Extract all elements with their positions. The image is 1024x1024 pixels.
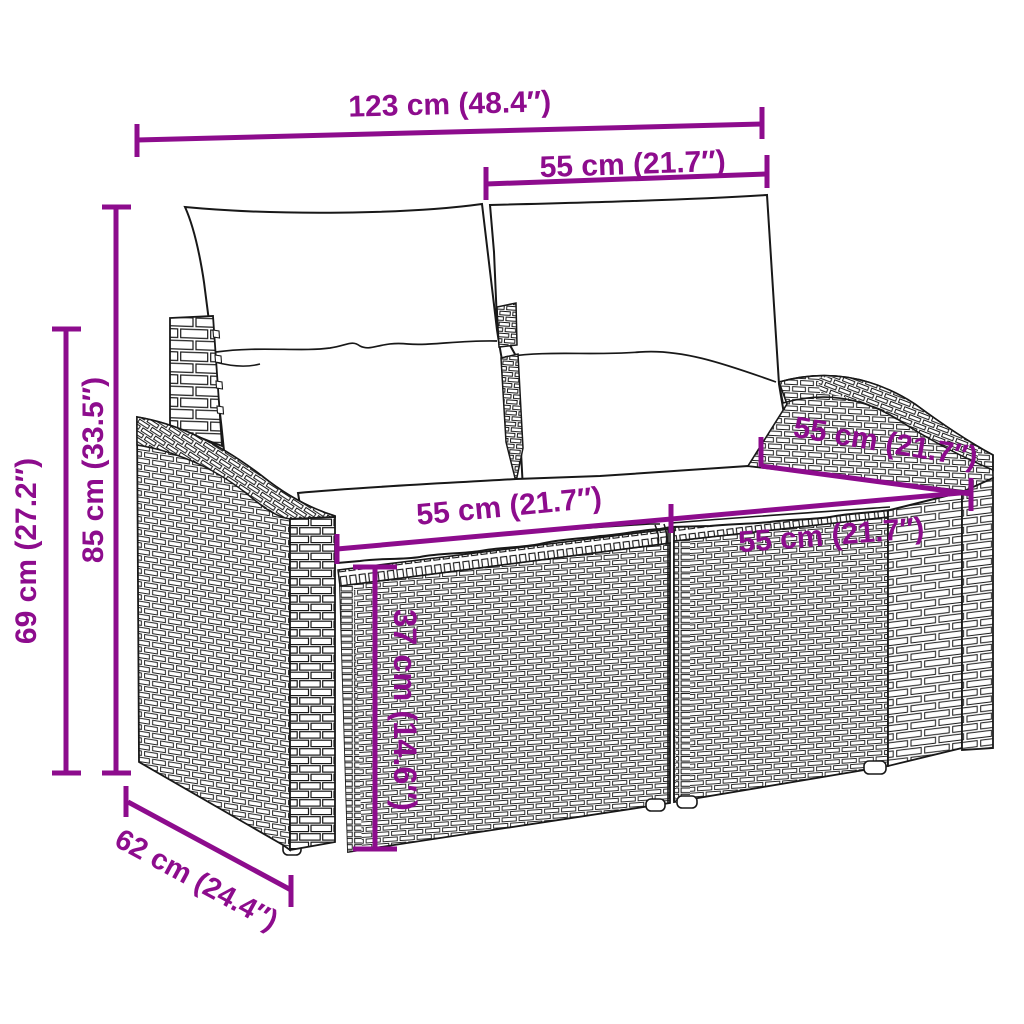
- svg-text:69 cm (27.2″): 69 cm (27.2″): [10, 458, 43, 644]
- svg-text:55 cm (21.7″): 55 cm (21.7″): [539, 145, 726, 184]
- svg-text:123 cm (48.4″): 123 cm (48.4″): [348, 85, 552, 123]
- svg-text:37 cm (14.6″): 37 cm (14.6″): [387, 609, 423, 811]
- svg-text:85 cm (33.5″): 85 cm (33.5″): [77, 377, 110, 563]
